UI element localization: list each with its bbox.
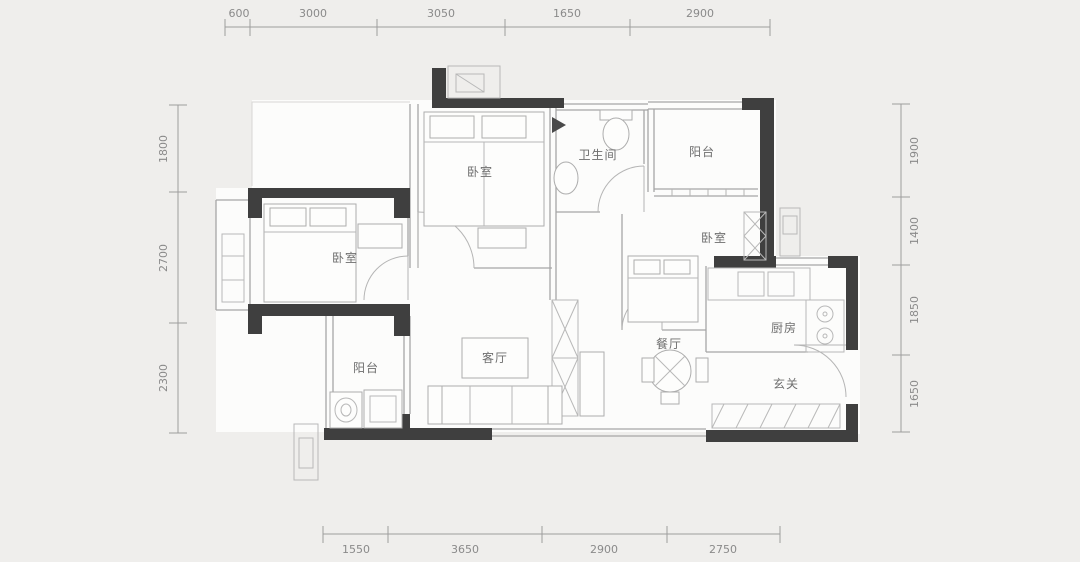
dim-left-1800: 1800 — [157, 135, 170, 163]
room-label-bedroom-left: 卧室 — [332, 250, 358, 265]
ac-platform-right — [780, 208, 800, 256]
room-label-master-bedroom: 卧室 — [467, 164, 493, 179]
dim-left-2300: 2300 — [157, 364, 170, 392]
dim-right-1850: 1850 — [908, 296, 921, 324]
dim-top-3050: 3050 — [427, 7, 455, 20]
tv-console-symbol — [580, 352, 604, 416]
room-label-dining: 餐厅 — [656, 336, 682, 351]
dim-bottom-3650: 3650 — [451, 543, 479, 556]
room-label-foyer: 玄关 — [773, 376, 799, 391]
dim-bottom-1550: 1550 — [342, 543, 370, 556]
dim-top-2900: 2900 — [686, 7, 714, 20]
bed-symbol-right — [628, 256, 698, 322]
desk-symbol-left — [358, 224, 402, 248]
room-label-balcony-bottom: 阳台 — [353, 360, 379, 375]
room-label-kitchen: 厨房 — [771, 320, 797, 335]
room-label-bathroom: 卫生间 — [578, 148, 617, 162]
balcony-counter-symbol — [364, 390, 402, 428]
dim-left-2700: 2700 — [157, 244, 170, 272]
dim-top-600: 600 — [229, 7, 250, 20]
dim-right-1650: 1650 — [908, 380, 921, 408]
dim-bottom-2750: 2750 — [709, 543, 737, 556]
bench-symbol-master — [478, 228, 526, 248]
dimension-right: 1900 1400 1850 1650 — [892, 104, 921, 432]
ac-platform-top — [448, 66, 500, 98]
room-label-bedroom-right: 卧室 — [701, 230, 727, 245]
dim-top-3000: 3000 — [299, 7, 327, 20]
floor-plan-canvas: 600 3000 3050 1650 2900 1800 2700 2300 1… — [0, 0, 1080, 562]
bathroom-sink-symbol — [554, 162, 578, 194]
floor-plan-svg: 600 3000 3050 1650 2900 1800 2700 2300 1… — [0, 0, 1080, 562]
sofa-symbol — [428, 386, 562, 424]
room-label-living: 客厅 — [482, 350, 508, 365]
room-label-balcony-top: 阳台 — [689, 144, 715, 159]
ac-platform-bottom — [294, 424, 318, 480]
dimension-top: 600 3000 3050 1650 2900 — [225, 7, 770, 36]
dimension-left: 1800 2700 2300 — [157, 105, 187, 433]
washer-symbol — [330, 392, 362, 428]
dimension-bottom: 1550 3650 2900 2750 — [323, 526, 780, 556]
dim-right-1900: 1900 — [908, 137, 921, 165]
dim-bottom-2900: 2900 — [590, 543, 618, 556]
dim-right-1400: 1400 — [908, 217, 921, 245]
dim-top-1650: 1650 — [553, 7, 581, 20]
